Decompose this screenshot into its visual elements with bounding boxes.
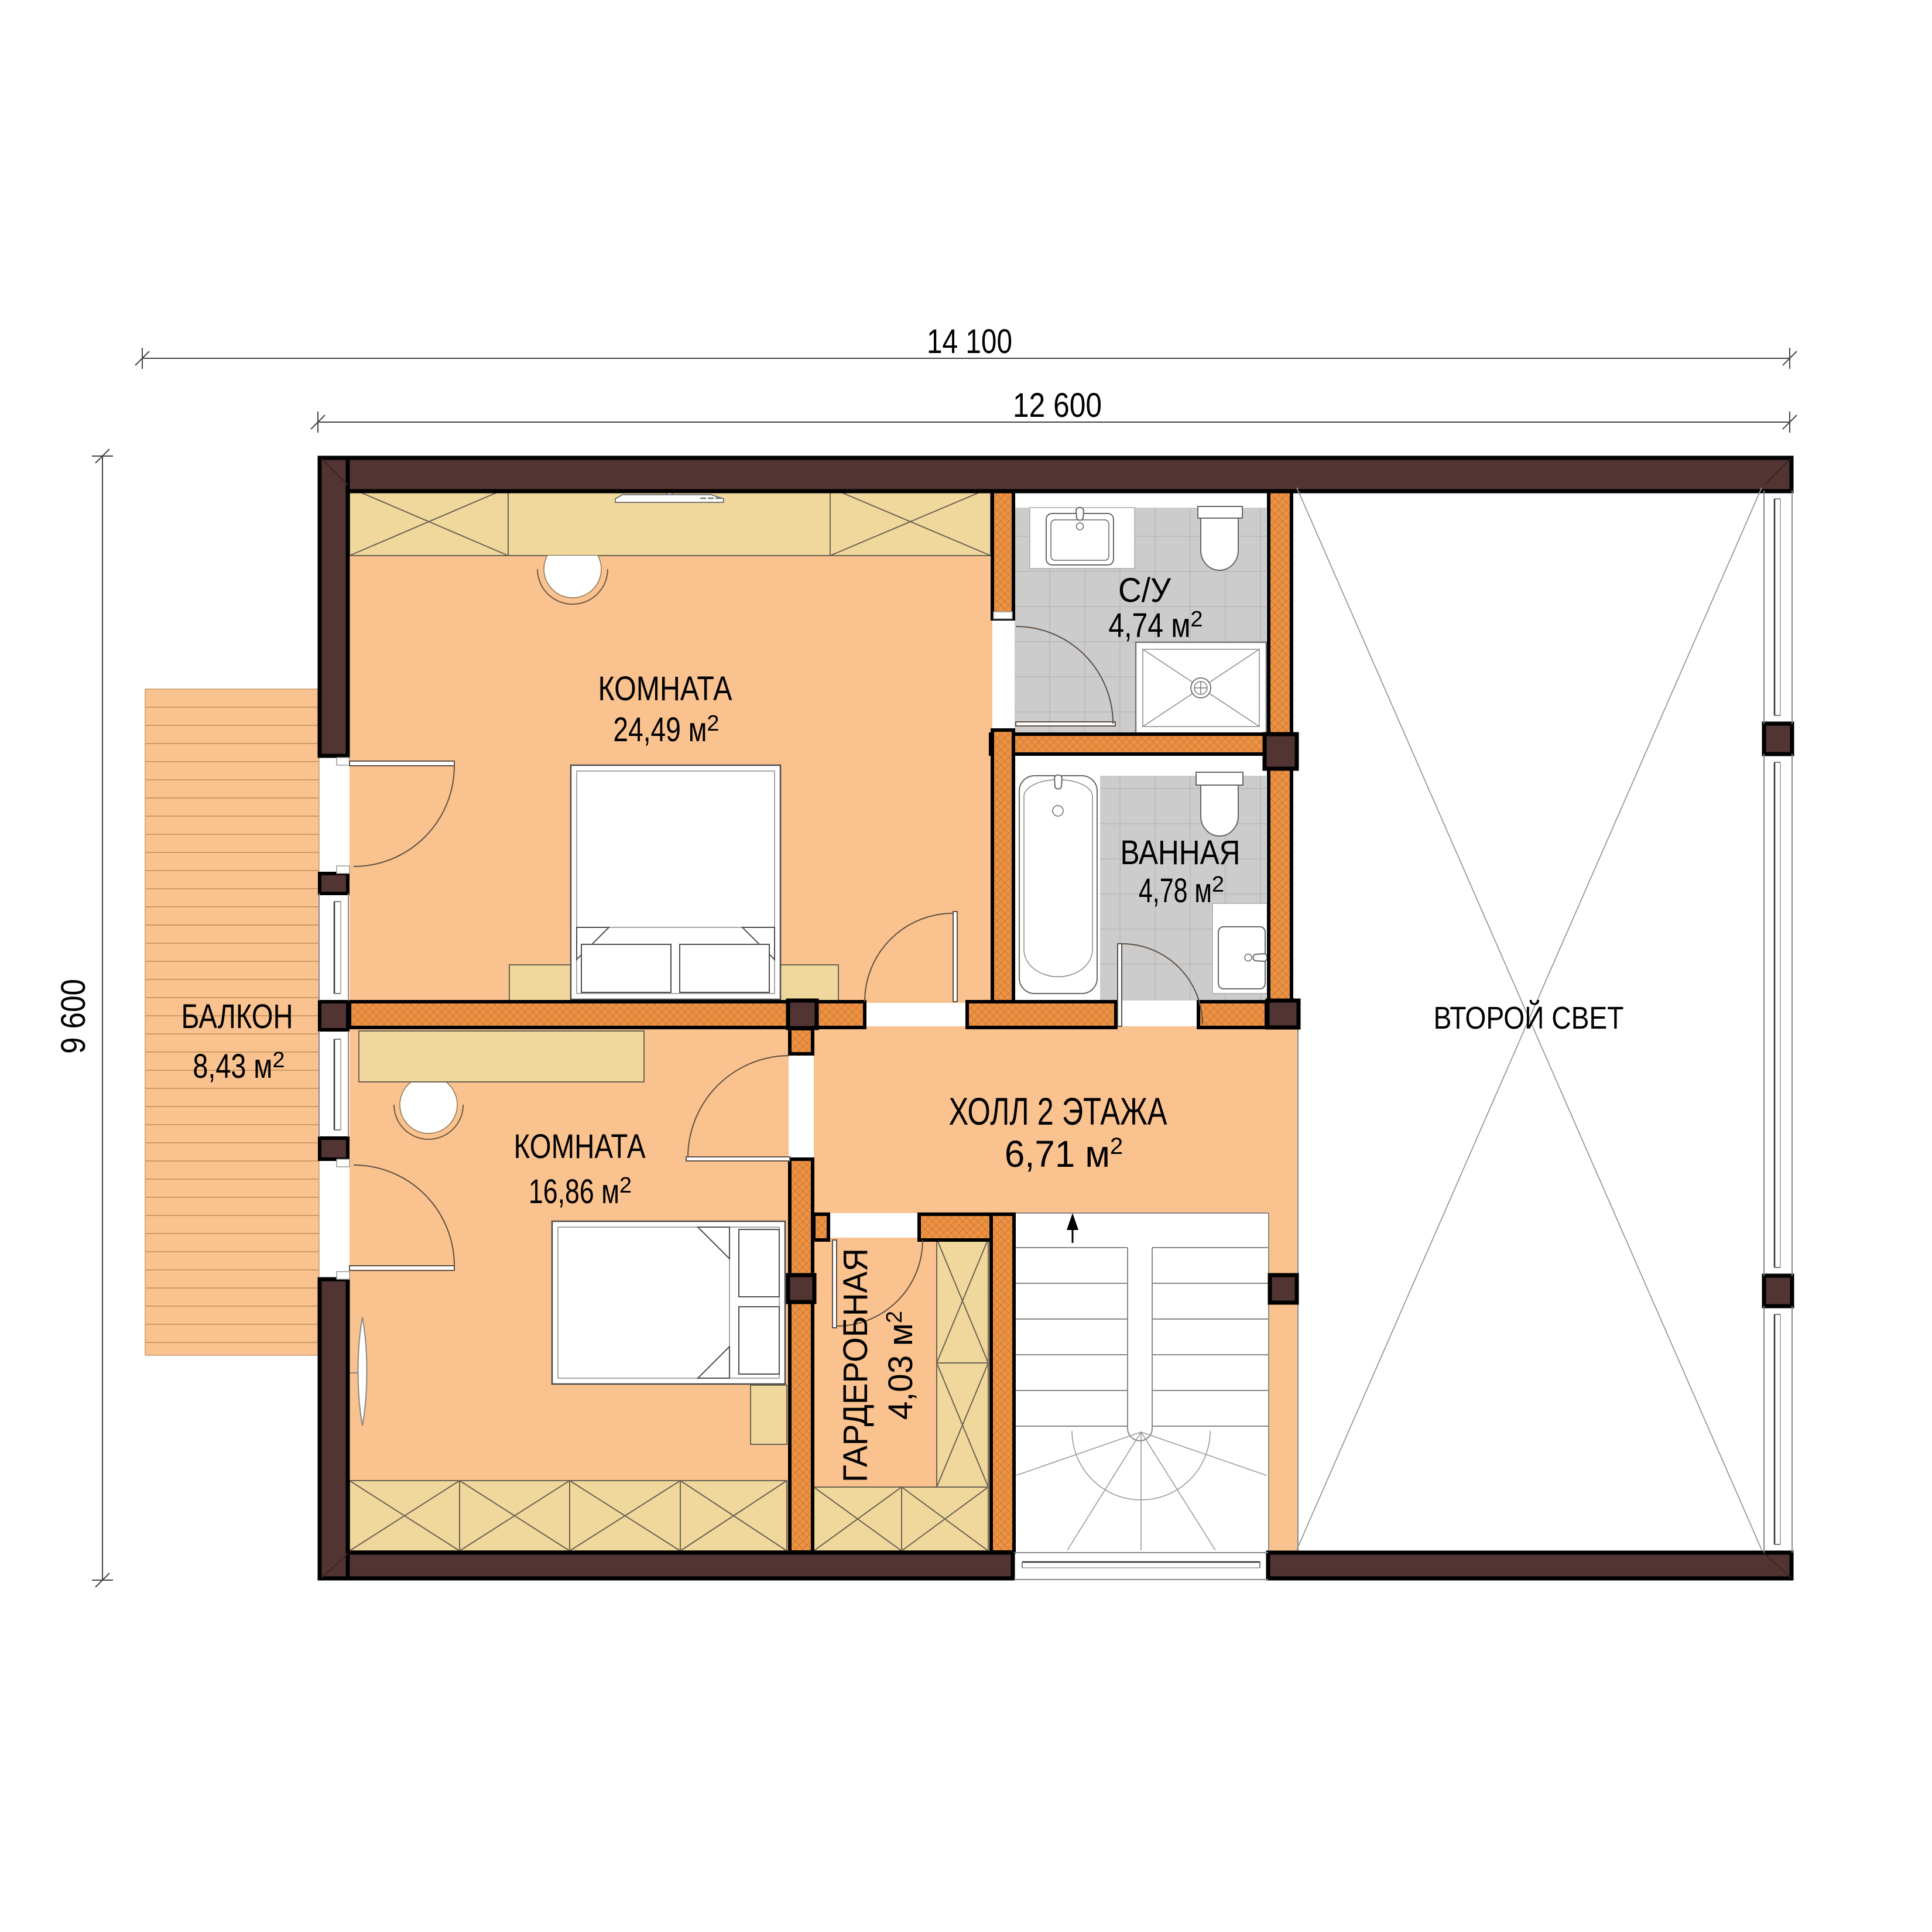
- svg-text:14 100: 14 100: [927, 323, 1012, 361]
- svg-text:КОМНАТА: КОМНАТА: [598, 670, 732, 708]
- svg-text:ВТОРОЙ СВЕТ: ВТОРОЙ СВЕТ: [1434, 1000, 1624, 1036]
- svg-text:ВАННАЯ: ВАННАЯ: [1121, 834, 1241, 872]
- svg-text:4,74 м2: 4,74 м2: [1108, 607, 1203, 645]
- svg-text:24,49 м2: 24,49 м2: [613, 711, 719, 749]
- svg-text:12 600: 12 600: [1013, 386, 1102, 424]
- svg-text:9 600: 9 600: [54, 979, 93, 1054]
- svg-text:4,78 м2: 4,78 м2: [1139, 872, 1224, 910]
- svg-text:БАЛКОН: БАЛКОН: [181, 998, 293, 1036]
- svg-text:С/У: С/У: [1118, 571, 1171, 609]
- svg-text:4,03 м2: 4,03 м2: [882, 1311, 920, 1420]
- svg-text:8,43 м2: 8,43 м2: [193, 1047, 285, 1085]
- svg-text:ХОЛЛ 2 ЭТАЖА: ХОЛЛ 2 ЭТАЖА: [949, 1090, 1167, 1133]
- svg-text:6,71 м2: 6,71 м2: [1005, 1133, 1123, 1175]
- svg-text:ГАРДЕРОБНАЯ: ГАРДЕРОБНАЯ: [837, 1248, 875, 1482]
- svg-text:КОМНАТА: КОМНАТА: [514, 1128, 646, 1166]
- svg-text:16,86 м2: 16,86 м2: [529, 1173, 632, 1211]
